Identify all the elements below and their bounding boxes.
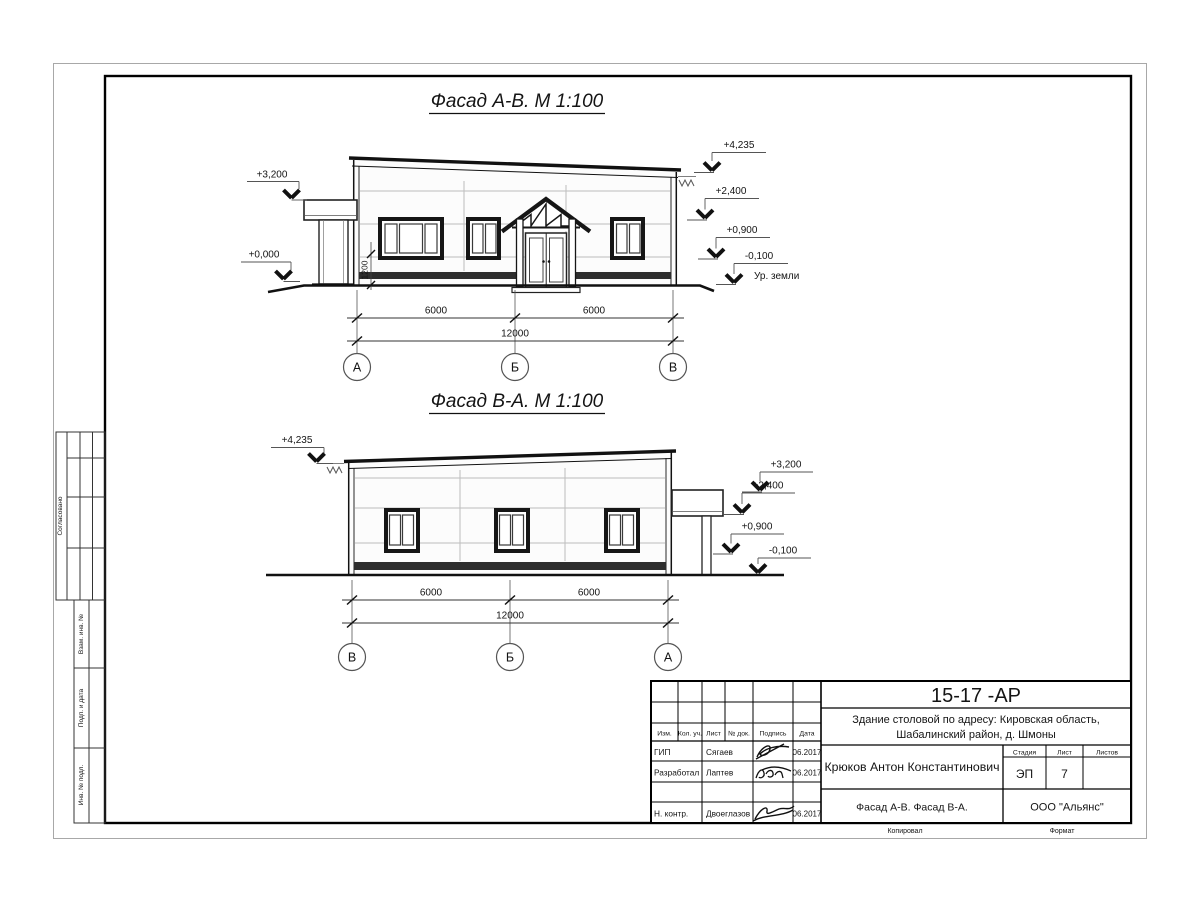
plinth-band bbox=[354, 562, 666, 570]
stage-label: Стадия bbox=[1013, 750, 1036, 757]
mark-0000-left: +0,000 bbox=[241, 250, 300, 282]
format-label: Формат bbox=[1050, 828, 1076, 835]
doc-number: 15-17 -АР bbox=[931, 685, 1021, 707]
plinth-band-right bbox=[576, 272, 671, 279]
object-line1: Здание столовой по адресу: Кировская обл… bbox=[852, 714, 1100, 726]
col-izm: Изм. bbox=[657, 731, 672, 738]
mark-4235-right: +4,235 bbox=[694, 140, 766, 173]
row-role: Н. контр. bbox=[654, 809, 688, 819]
mark-3200-left: +3,200 bbox=[247, 170, 307, 201]
svg-text:А: А bbox=[353, 361, 362, 375]
col-doc: № док. bbox=[728, 731, 750, 738]
copied-label: Копировал bbox=[887, 828, 922, 835]
row-role: ГИП bbox=[654, 747, 670, 757]
window-3 bbox=[612, 219, 643, 258]
sheet-label: Лист bbox=[1057, 750, 1072, 757]
ground-level-label: Ур. земли bbox=[754, 271, 799, 282]
sheet-value: 7 bbox=[1061, 767, 1068, 781]
facade-av: Фасад А-В. М 1:100 bbox=[241, 91, 799, 381]
axis-marker-a: А bbox=[655, 644, 682, 671]
facade-av-canopy bbox=[304, 200, 357, 285]
row-role: Разработал bbox=[654, 768, 699, 778]
mark-2400-right: +2,400 bbox=[724, 481, 795, 515]
canopy-column bbox=[702, 516, 711, 575]
dim-12000: 12000 bbox=[496, 611, 524, 622]
svg-text:+2,400: +2,400 bbox=[716, 186, 747, 197]
svg-text:-0,100: -0,100 bbox=[769, 546, 798, 557]
stage-headers: Стадия Лист Листов bbox=[1013, 750, 1119, 757]
facade-va-title: Фасад В-А. М 1:100 bbox=[431, 391, 604, 412]
object-line2: Шабалинский район, д. Шмоны bbox=[896, 729, 1056, 741]
podp-label: Подп. и дата bbox=[78, 688, 85, 727]
svg-text:+4,235: +4,235 bbox=[724, 140, 755, 151]
inv-label: Инв. № подл. bbox=[78, 765, 85, 806]
mark-4235-left: +4,235 bbox=[271, 435, 333, 464]
svg-text:+3,200: +3,200 bbox=[257, 170, 288, 181]
axis-marker-a: А bbox=[344, 354, 371, 381]
axis-marker-b: Б bbox=[502, 354, 529, 381]
stage-value: ЭП bbox=[1016, 767, 1033, 781]
dim-12000: 12000 bbox=[501, 329, 529, 340]
dim-6000-right: 6000 bbox=[583, 306, 606, 317]
row-date: 06.2017 bbox=[793, 748, 822, 757]
sheets-label: Листов bbox=[1096, 750, 1118, 757]
row-date: 06.2017 bbox=[793, 810, 822, 819]
svg-text:В: В bbox=[348, 651, 356, 665]
row-name: Двоеглазов bbox=[706, 809, 751, 819]
svg-text:+2,400: +2,400 bbox=[753, 481, 784, 492]
author-name: Крюков Антон Константинович bbox=[824, 760, 999, 774]
facade-va-dims: 6000 6000 12000 В Б А bbox=[339, 580, 682, 671]
svg-text:+0,000: +0,000 bbox=[249, 250, 280, 261]
axis-marker-v: В bbox=[660, 354, 687, 381]
mark-minus0100-right: -0,100 bbox=[750, 546, 811, 573]
svg-text:А: А bbox=[664, 651, 673, 665]
ground-line bbox=[268, 286, 714, 293]
window-1 bbox=[386, 510, 418, 551]
svg-text:В: В bbox=[669, 361, 677, 375]
parapet-symbol bbox=[678, 177, 696, 187]
svg-text:+0,900: +0,900 bbox=[727, 225, 758, 236]
row-date: 06.2017 bbox=[793, 769, 822, 778]
window-2 bbox=[468, 219, 499, 258]
svg-text:+0,900: +0,900 bbox=[742, 522, 773, 533]
parapet-symbol bbox=[326, 464, 344, 474]
dim-6000-left: 6000 bbox=[420, 588, 443, 599]
window-2 bbox=[496, 510, 528, 551]
approve-label: Согласовано bbox=[57, 496, 64, 535]
axis-marker-v: В bbox=[339, 644, 366, 671]
col-sign: Подпись bbox=[760, 731, 787, 738]
drawing-sheet: Согласовано Взам. инв. № Подп. и дата Ин… bbox=[0, 0, 1200, 900]
mark-2400-right: +2,400 bbox=[687, 186, 759, 220]
side-panel: Согласовано Взам. инв. № Подп. и дата Ин… bbox=[56, 432, 105, 823]
svg-text:Б: Б bbox=[511, 361, 519, 375]
dim-6000-left: 6000 bbox=[425, 306, 448, 317]
svg-text:+3,200: +3,200 bbox=[771, 460, 802, 471]
facade-va-canopy bbox=[672, 490, 723, 575]
svg-text:-0,100: -0,100 bbox=[745, 251, 774, 262]
row-name: Сягаев bbox=[706, 747, 734, 757]
company-name: ООО "Альянс" bbox=[1030, 802, 1104, 814]
sheet-title: Фасад А-В. Фасад В-А. bbox=[856, 802, 968, 814]
window-1 bbox=[380, 219, 442, 258]
vzam-label: Взам. инв. № bbox=[78, 614, 85, 654]
svg-text:+4,235: +4,235 bbox=[282, 435, 313, 446]
entrance-step bbox=[512, 288, 580, 293]
svg-text:Б: Б bbox=[506, 651, 514, 665]
title-block: 15-17 -АР Здание столовой по адресу: Кир… bbox=[651, 681, 1131, 835]
dim-6000-right: 6000 bbox=[578, 588, 601, 599]
row-name: Лаптев bbox=[706, 768, 734, 778]
col-list: Лист bbox=[706, 731, 721, 738]
window-3 bbox=[606, 510, 638, 551]
window-height-dim-text: 1200 bbox=[360, 260, 370, 279]
col-date: Дата bbox=[799, 731, 814, 738]
facade-va: Фасад В-А. М 1:100 bbox=[266, 391, 813, 671]
facade-av-dims: 6000 6000 12000 А Б В bbox=[344, 290, 687, 381]
col-kol: Кол. уч. bbox=[678, 731, 702, 738]
axis-marker-b: Б bbox=[497, 644, 524, 671]
facade-av-title: Фасад А-В. М 1:100 bbox=[431, 91, 604, 112]
plinth-band-left bbox=[359, 272, 516, 279]
